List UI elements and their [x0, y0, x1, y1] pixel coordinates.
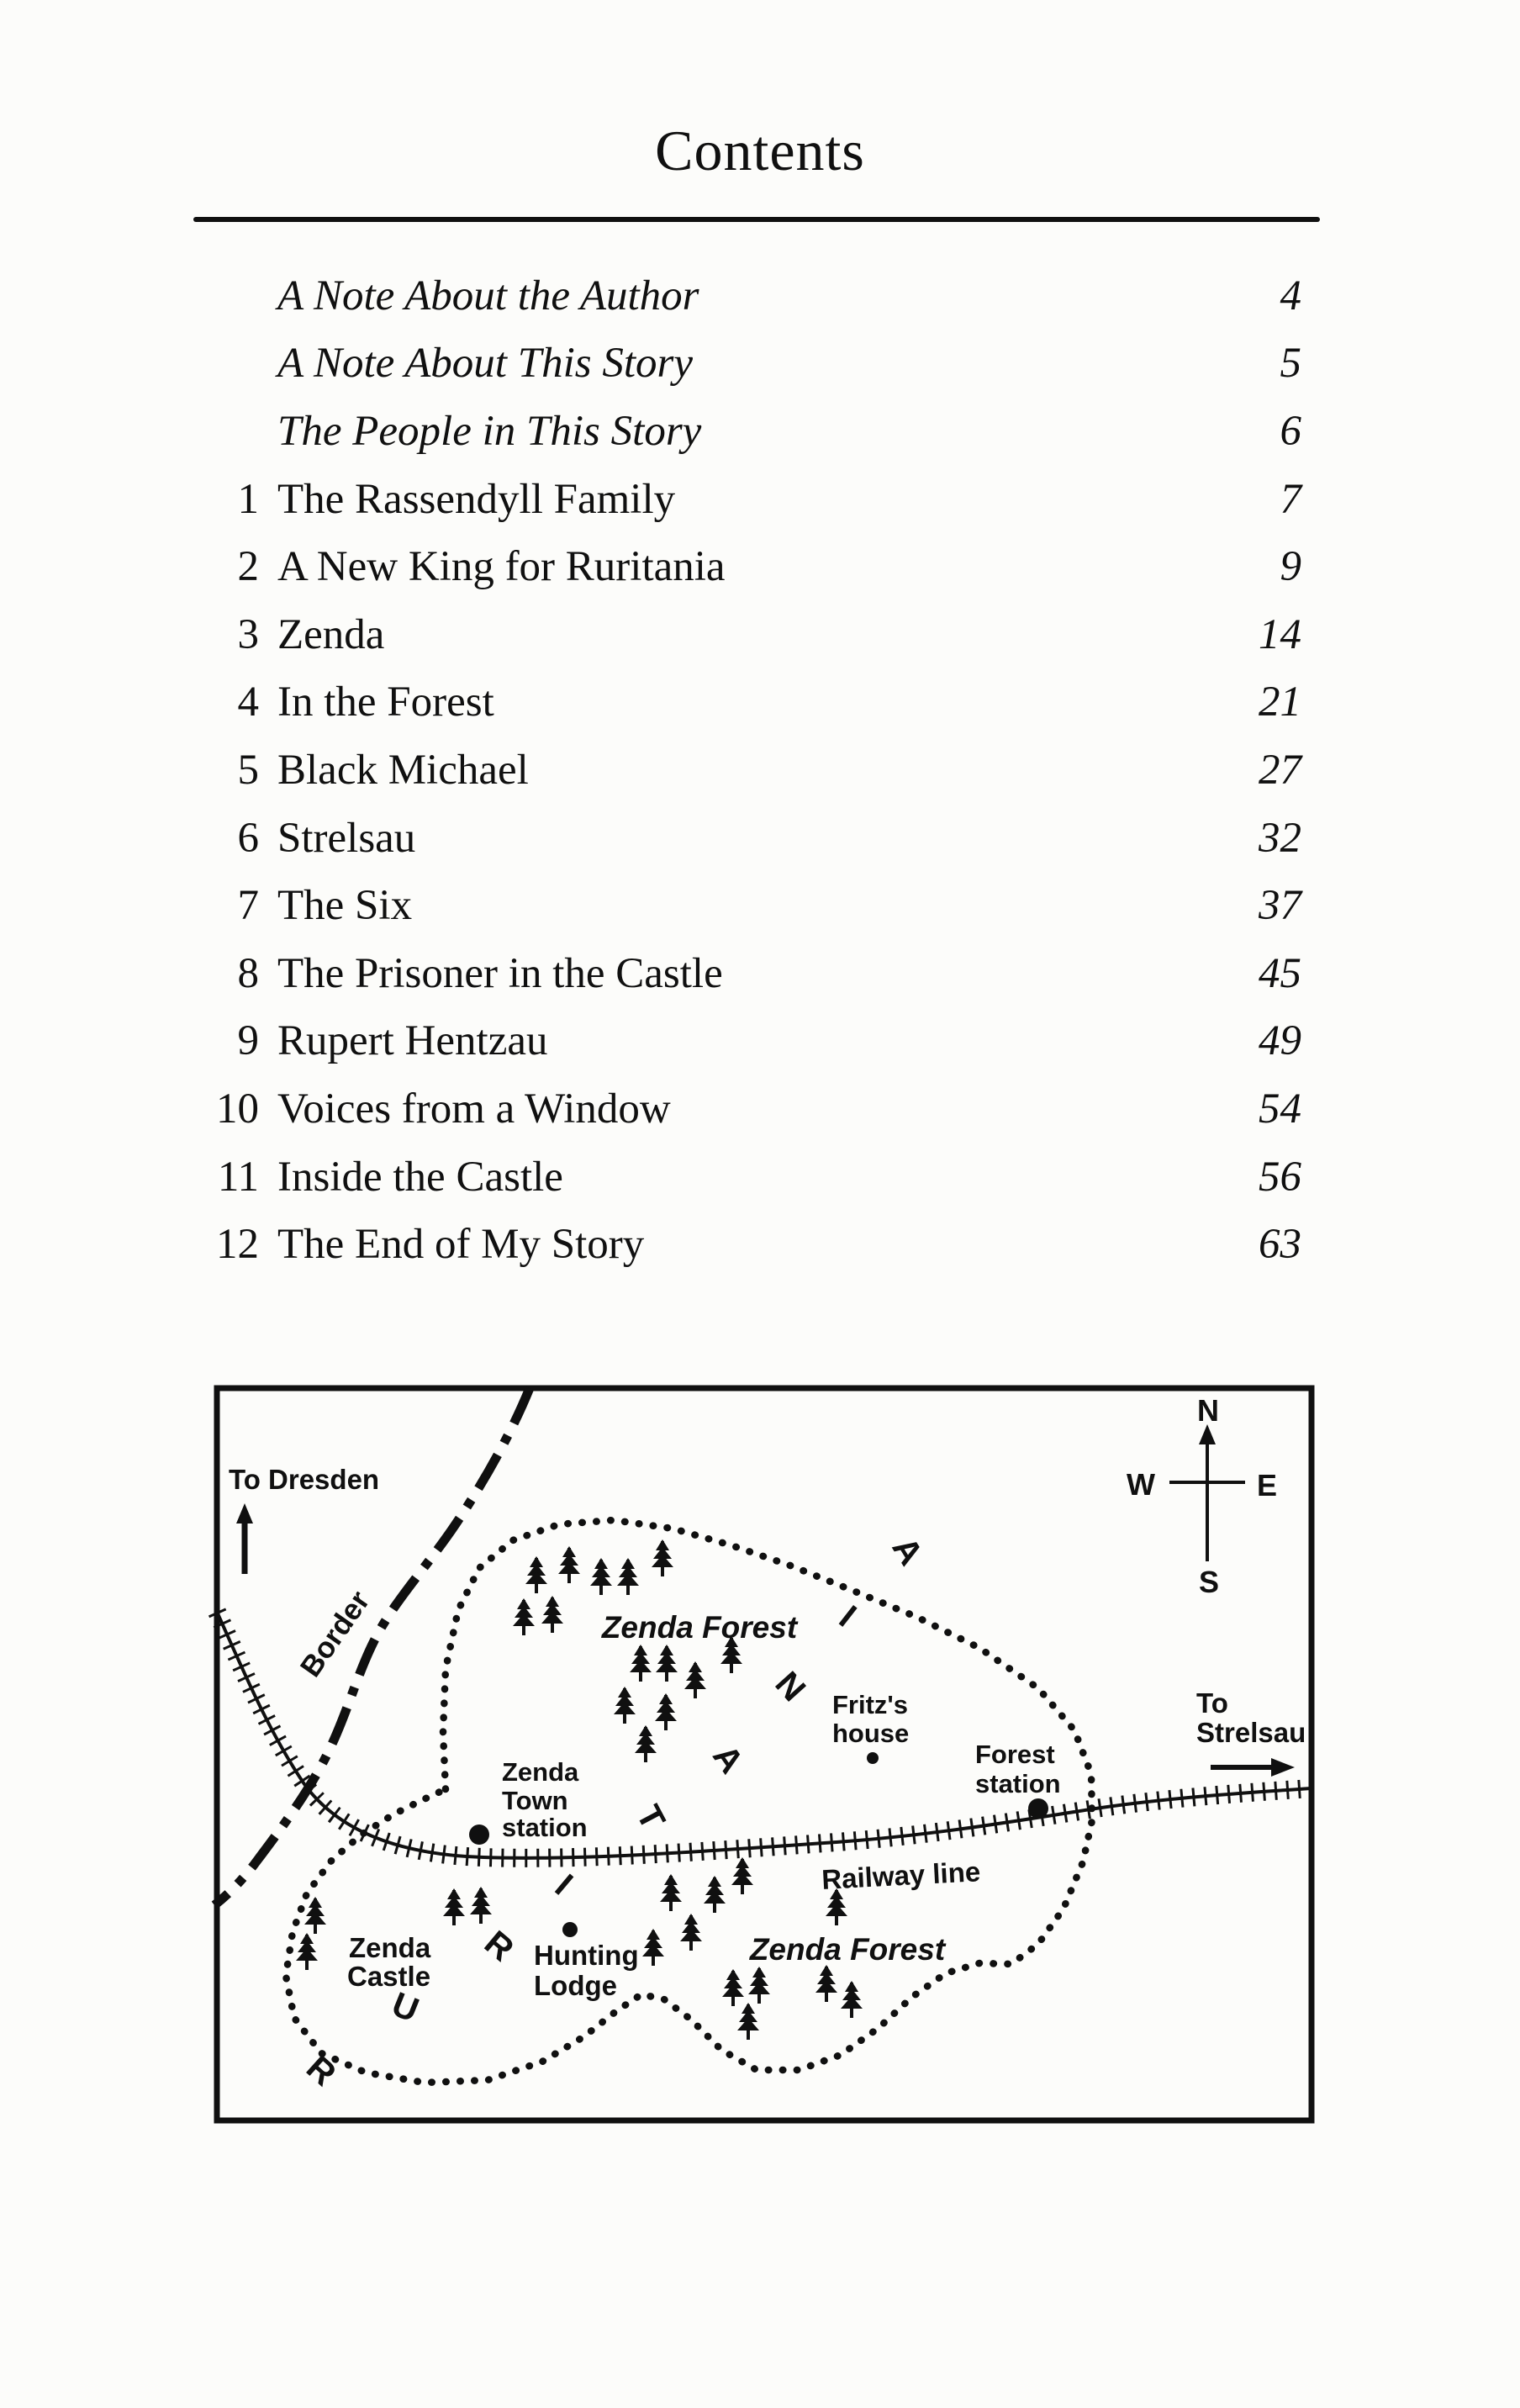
to-dresden-arrowhead-icon: [236, 1503, 253, 1523]
zenda-map: N S W E To Dresden Border Zenda Forest Z…: [0, 0, 1520, 2408]
pine-tree-icon: [660, 1874, 682, 1911]
pine-tree-icon: [731, 1857, 753, 1894]
pine-tree-icon: [635, 1725, 657, 1762]
pine-tree-icon: [748, 1967, 770, 2004]
compass: N S W E: [1127, 1393, 1277, 1599]
forest-station-dot-icon: [1028, 1798, 1048, 1819]
pine-tree-icon: [815, 1965, 837, 2002]
pine-tree-icon: [617, 1558, 639, 1595]
country-letter: I: [832, 1597, 863, 1634]
compass-e-label: E: [1257, 1468, 1277, 1502]
country-letter: I: [548, 1867, 580, 1903]
country-letter: T: [629, 1799, 673, 1836]
to-dresden-label: To Dresden: [229, 1464, 379, 1495]
railway-ticks: [217, 1612, 1312, 1858]
hunting-lodge-label-line2: Lodge: [534, 1970, 617, 2001]
railway-line-label: Railway line: [821, 1856, 981, 1895]
pine-tree-icon: [304, 1897, 326, 1934]
to-strelsau-label-line2: Strelsau: [1196, 1717, 1306, 1748]
forest-station-label-line1: Forest: [975, 1740, 1055, 1769]
zenda-forest-north-label: Zenda Forest: [601, 1610, 799, 1645]
pine-tree-icon: [704, 1876, 726, 1913]
country-letter: N: [768, 1664, 813, 1708]
to-strelsau-label-line1: To: [1196, 1687, 1228, 1719]
town-station-label-line3: station: [502, 1813, 588, 1842]
pine-tree-icon: [590, 1558, 612, 1595]
country-letter: A: [705, 1738, 752, 1781]
compass-w-label: W: [1127, 1467, 1155, 1502]
town-station-label-line2: Town: [502, 1786, 568, 1815]
pine-tree-icon: [443, 1888, 465, 1925]
pine-tree-icon: [656, 1645, 678, 1682]
fritz-house-dot-icon: [867, 1752, 879, 1764]
pine-tree-icon: [680, 1914, 702, 1951]
pine-tree-icon: [513, 1598, 535, 1635]
pine-tree-icon: [737, 2003, 759, 2040]
pine-tree-icon: [525, 1556, 547, 1593]
zenda-castle-label-line1: Zenda: [349, 1932, 431, 1963]
pine-tree-icon: [655, 1693, 677, 1730]
pine-tree-icon: [614, 1687, 636, 1724]
town-station-dot-icon: [469, 1824, 489, 1845]
zenda-forest-south-label: Zenda Forest: [749, 1932, 947, 1967]
pine-tree-icon: [722, 1969, 744, 2006]
forest-station-label-line2: station: [975, 1769, 1061, 1798]
country-letter: A: [885, 1530, 932, 1571]
pine-tree-icon: [652, 1539, 673, 1576]
pine-tree-icon: [541, 1596, 563, 1633]
town-station-label-line1: Zenda: [502, 1757, 579, 1787]
pine-tree-icon: [684, 1661, 706, 1698]
fritz-house-label-line1: Fritz's: [832, 1690, 908, 1719]
country-letter: R: [299, 2048, 344, 2094]
pine-tree-icon: [630, 1645, 652, 1682]
railway-line: [217, 1612, 1312, 1858]
compass-s-label: S: [1199, 1565, 1219, 1599]
compass-n-label: N: [1197, 1393, 1219, 1428]
zenda-castle-label-line2: Castle: [347, 1961, 430, 1992]
pine-tree-icon: [470, 1887, 492, 1924]
hunting-lodge-dot-icon: [562, 1922, 578, 1937]
fritz-house-label-line2: house: [832, 1719, 909, 1748]
country-letter: R: [478, 1923, 521, 1968]
pine-tree-icon: [841, 1981, 863, 2018]
to-strelsau-arrowhead-icon: [1271, 1758, 1295, 1777]
pine-tree-icon: [558, 1546, 580, 1583]
book-contents-page: Contents A Note About the Author4A Note …: [0, 0, 1520, 2408]
pine-tree-icon: [642, 1929, 664, 1966]
pine-tree-icon: [296, 1933, 318, 1970]
hunting-lodge-label-line1: Hunting: [534, 1940, 639, 1971]
